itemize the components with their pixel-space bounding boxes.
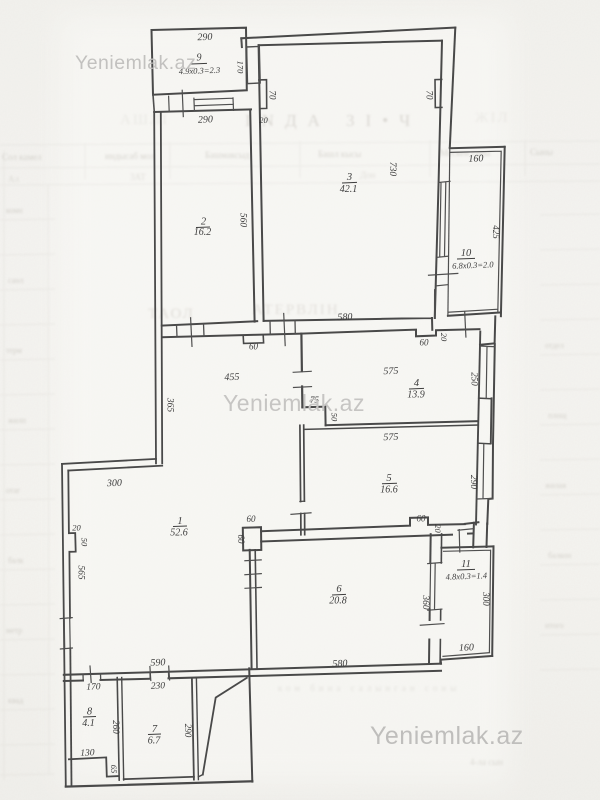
svg-text:20: 20 (439, 333, 449, 342)
svg-text:6: 6 (336, 584, 342, 595)
svg-text:290: 290 (198, 114, 213, 126)
svg-text:АШЛІ: АШЛІ (120, 112, 169, 128)
svg-text:575: 575 (383, 366, 398, 378)
svg-text:терм: терм (6, 346, 22, 355)
svg-text:16.2: 16.2 (194, 227, 212, 238)
svg-text:52.6: 52.6 (170, 528, 188, 539)
svg-text:Сол камел: Сол камел (2, 152, 42, 162)
svg-text:60: 60 (417, 514, 427, 524)
svg-text:6.7: 6.7 (148, 736, 162, 747)
svg-text:730: 730 (387, 162, 397, 177)
svg-text:балк: балк (8, 556, 24, 565)
svg-text:20: 20 (259, 115, 268, 125)
svg-text:отдел: отдел (545, 341, 564, 350)
svg-text:ком бина салынган соны: ком бина салынган соны (278, 683, 460, 693)
svg-text:365: 365 (165, 397, 175, 413)
svg-text:13.9: 13.9 (407, 390, 425, 401)
svg-text:Башмаксыд: Башмаксыд (205, 150, 250, 160)
svg-text:9: 9 (197, 53, 202, 64)
svg-text:160: 160 (459, 642, 474, 654)
svg-text:20: 20 (433, 524, 443, 533)
svg-text:300: 300 (481, 591, 491, 606)
svg-text:Ал: Ал (8, 174, 19, 184)
svg-text:3: 3 (346, 172, 352, 183)
svg-text:360: 360 (420, 594, 430, 610)
svg-text:итого: итого (545, 621, 564, 630)
svg-text:20: 20 (72, 523, 81, 533)
svg-text:70: 70 (425, 91, 435, 101)
svg-text:60: 60 (236, 535, 246, 545)
svg-text:290: 290 (197, 32, 212, 44)
svg-text:20.8: 20.8 (329, 596, 347, 607)
svg-text:санл: санл (8, 276, 23, 285)
svg-text:4.8x0.3=1.4: 4.8x0.3=1.4 (446, 570, 488, 581)
svg-text:160: 160 (468, 153, 483, 165)
svg-text:580: 580 (337, 312, 352, 324)
svg-text:2: 2 (201, 217, 207, 228)
svg-text:65: 65 (109, 765, 119, 774)
svg-text:425: 425 (491, 225, 501, 239)
svg-text:10: 10 (461, 248, 472, 259)
svg-text:290: 290 (183, 724, 193, 738)
svg-text:5: 5 (386, 473, 391, 484)
svg-text:комн: комн (6, 206, 23, 215)
svg-text:170: 170 (236, 61, 246, 75)
svg-text:260: 260 (111, 720, 121, 734)
svg-text:130: 130 (80, 748, 95, 758)
svg-text:3АТ: 3АТ (130, 172, 146, 182)
svg-text:170: 170 (86, 682, 101, 692)
svg-text:6.8x0.3=2.0: 6.8x0.3=2.0 (452, 259, 494, 270)
svg-text:60: 60 (420, 338, 430, 348)
svg-text:метр: метр (6, 626, 22, 635)
svg-text:индысаб мол: индысаб мол (105, 151, 155, 161)
svg-text:50: 50 (80, 538, 90, 547)
svg-text:жилп: жилп (7, 416, 27, 425)
svg-text:ІNДА 3І•Ч: ІNДА 3І•Ч (245, 111, 421, 130)
svg-text:балкон: балкон (548, 551, 572, 560)
svg-text:8: 8 (87, 707, 93, 718)
svg-text:Дон: Дон (360, 170, 376, 180)
svg-text:580: 580 (332, 658, 347, 670)
svg-text:455: 455 (224, 372, 239, 384)
svg-text:565: 565 (76, 565, 86, 580)
svg-text:4-ла сын: 4-ла сын (470, 757, 503, 767)
svg-text:Сыны: Сыны (530, 147, 553, 157)
svg-text:7: 7 (152, 724, 158, 735)
svg-text:60: 60 (249, 342, 259, 352)
svg-text:4: 4 (414, 378, 420, 389)
svg-text:ЖІЛ: ЖІЛ (475, 110, 510, 126)
svg-text:отаг: отаг (6, 486, 21, 495)
svg-text:1: 1 (177, 516, 182, 527)
svg-text:4.1: 4.1 (82, 718, 95, 729)
svg-text:300: 300 (106, 478, 122, 490)
svg-text:230: 230 (151, 681, 166, 691)
svg-text:60: 60 (247, 514, 257, 524)
svg-text:11: 11 (461, 559, 471, 570)
svg-text:жилая: жилая (544, 481, 566, 490)
svg-text:290: 290 (468, 475, 478, 490)
svg-text:590: 590 (150, 657, 165, 669)
svg-text:Башл кысы: Башл кысы (318, 149, 361, 159)
svg-text:квад: квад (8, 696, 23, 705)
svg-text:площ: площ (548, 411, 566, 420)
svg-text:АТЕРВЛІН: АТЕРВЛІН (252, 302, 340, 318)
svg-text:16.6: 16.6 (380, 485, 398, 496)
svg-text:250: 250 (470, 372, 480, 386)
svg-text:42.1: 42.1 (340, 184, 358, 195)
svg-text:560: 560 (238, 213, 248, 228)
svg-text:575: 575 (383, 432, 398, 444)
svg-text:70: 70 (268, 91, 278, 101)
